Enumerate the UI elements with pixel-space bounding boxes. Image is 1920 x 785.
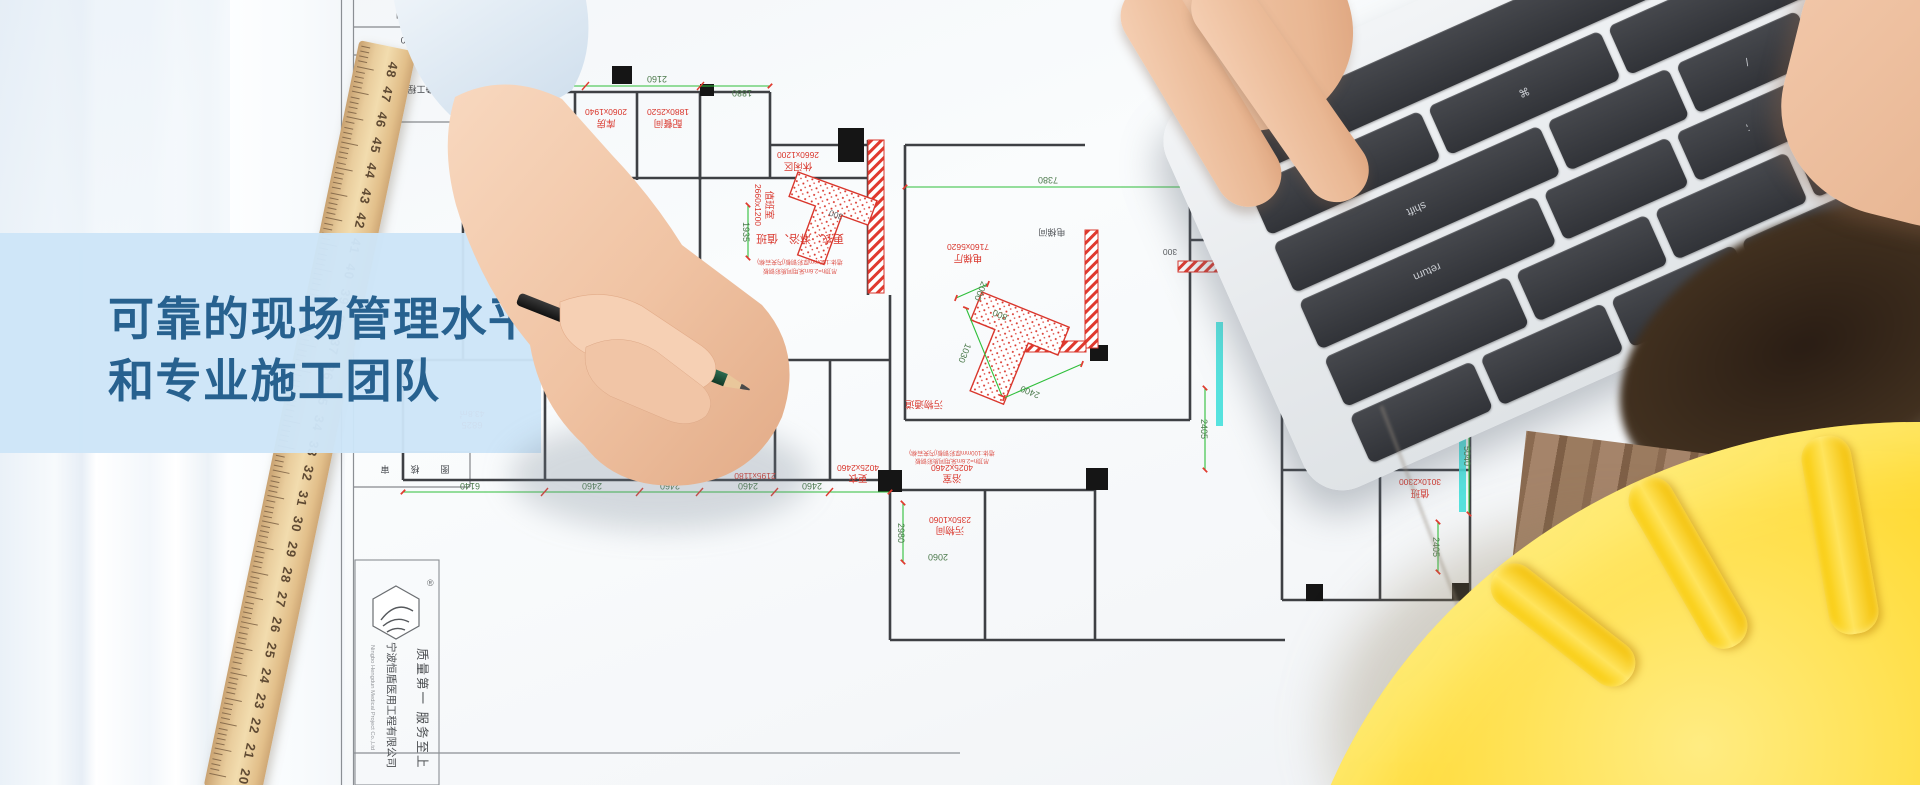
svg-text:1030: 1030 bbox=[956, 342, 973, 364]
ruler-minor-tick bbox=[323, 227, 332, 230]
ruler-major-tick bbox=[325, 217, 342, 221]
ruler-number: 28 bbox=[276, 565, 295, 590]
ruler-minor-tick bbox=[266, 500, 275, 503]
ruler-major-tick bbox=[341, 142, 358, 146]
hero-banner: 设 计 图 1:100 医院洁净工程平面布置图 审 核 图 ® 质量第一 服务至… bbox=[0, 0, 1920, 785]
ruler-minor-tick bbox=[226, 692, 235, 695]
svg-text:2060: 2060 bbox=[928, 552, 948, 562]
ruler-minor-tick bbox=[274, 465, 283, 468]
ruler-minor-tick bbox=[332, 187, 341, 190]
ruler-number: 25 bbox=[261, 641, 280, 666]
ruler-major-tick bbox=[352, 91, 369, 95]
ruler-minor-tick bbox=[263, 515, 272, 518]
ruler-minor-tick bbox=[327, 207, 336, 210]
ruler-minor-tick bbox=[254, 561, 263, 564]
ruler-minor-tick bbox=[270, 480, 279, 483]
ruler-minor-tick bbox=[234, 657, 243, 660]
ruler-minor-tick bbox=[354, 81, 363, 84]
svg-text:2350x1060: 2350x1060 bbox=[929, 515, 971, 525]
ruler-number: 26 bbox=[266, 616, 285, 641]
svg-text:电梯间: 电梯间 bbox=[1038, 227, 1065, 238]
ruler-number: 22 bbox=[245, 717, 264, 742]
ruler-minor-tick bbox=[339, 152, 348, 155]
ruler-minor-tick bbox=[324, 222, 333, 225]
ruler-number: 31 bbox=[292, 489, 311, 514]
ruler-major-tick bbox=[246, 596, 263, 600]
svg-text:污物通道: 污物通道 bbox=[905, 398, 944, 410]
ruler-minor-tick bbox=[221, 717, 230, 720]
ruler-minor-tick bbox=[342, 136, 351, 139]
ruler-minor-tick bbox=[210, 768, 219, 771]
ruler-major-tick bbox=[273, 470, 290, 474]
ruler-minor-tick bbox=[333, 182, 342, 185]
ruler-number: 44 bbox=[361, 161, 380, 186]
svg-text:3010x2300: 3010x2300 bbox=[1399, 477, 1441, 487]
ruler-minor-tick bbox=[243, 611, 252, 614]
ruler-minor-tick bbox=[229, 677, 238, 680]
ruler-number: 21 bbox=[240, 742, 259, 767]
ruler-major-tick bbox=[346, 116, 363, 120]
ruler-minor-tick bbox=[250, 576, 259, 579]
ruler-minor-tick bbox=[235, 652, 244, 655]
ruler-major-tick bbox=[357, 66, 374, 70]
ruler-minor-tick bbox=[330, 197, 339, 200]
svg-text:电梯厅: 电梯厅 bbox=[953, 252, 982, 264]
ruler-minor-tick bbox=[216, 743, 225, 746]
ruler-minor-tick bbox=[227, 687, 236, 690]
ruler-minor-tick bbox=[255, 556, 264, 559]
svg-text:浴室: 浴室 bbox=[942, 472, 961, 484]
ruler-minor-tick bbox=[272, 475, 281, 478]
svg-text:7380: 7380 bbox=[1038, 175, 1058, 185]
svg-text:2980: 2980 bbox=[896, 523, 906, 543]
stamp-logo-hexagon bbox=[373, 586, 419, 639]
ruler-major-tick bbox=[252, 571, 269, 575]
ruler-minor-tick bbox=[349, 106, 358, 109]
ruler-minor-tick bbox=[238, 637, 247, 640]
ruler-minor-tick bbox=[222, 712, 231, 715]
ruler-major-tick bbox=[267, 495, 284, 499]
svg-text:300: 300 bbox=[1163, 247, 1177, 257]
ruler-number: 30 bbox=[287, 515, 306, 540]
ruler-minor-tick bbox=[260, 530, 269, 533]
ruler-minor-tick bbox=[259, 536, 268, 539]
ruler-major-tick bbox=[225, 697, 242, 701]
ruler-minor-tick bbox=[360, 51, 369, 54]
svg-text:更衣: 更衣 bbox=[848, 472, 868, 484]
ruler-major-tick bbox=[236, 647, 253, 651]
ruler-number: 20 bbox=[234, 767, 253, 785]
ruler-minor-tick bbox=[358, 61, 367, 64]
ruler-minor-tick bbox=[335, 172, 344, 175]
ruler-major-tick bbox=[230, 672, 247, 676]
ruler-minor-tick bbox=[268, 490, 277, 493]
ruler-minor-tick bbox=[258, 541, 267, 544]
ruler-minor-tick bbox=[214, 753, 223, 756]
ruler-minor-tick bbox=[343, 131, 352, 134]
ruler-minor-tick bbox=[340, 147, 349, 150]
ruler-minor-tick bbox=[355, 76, 364, 79]
ruler-minor-tick bbox=[240, 626, 249, 629]
ruler-minor-tick bbox=[350, 101, 359, 104]
ruler-minor-tick bbox=[344, 126, 353, 129]
svg-text:4025x2460: 4025x2460 bbox=[931, 463, 973, 473]
ruler-minor-tick bbox=[212, 758, 221, 761]
ruler-minor-tick bbox=[345, 121, 354, 124]
ruler-minor-tick bbox=[265, 505, 274, 508]
ruler-minor-tick bbox=[249, 581, 258, 584]
ruler-minor-tick bbox=[245, 601, 254, 604]
company-stamp: ® 质量第一 服务至上 宁波恒盾医用工程有限公司 Ningbo Hengdun … bbox=[355, 560, 439, 785]
ruler-number: 24 bbox=[255, 666, 274, 691]
svg-text:2405: 2405 bbox=[1199, 419, 1209, 439]
ruler-major-tick bbox=[241, 621, 258, 625]
ruler-minor-tick bbox=[356, 71, 365, 74]
svg-text:墙体:100mm厚彩钢板(内夹岩棉): 墙体:100mm厚彩钢板(内夹岩棉) bbox=[909, 449, 995, 457]
ruler-minor-tick bbox=[233, 662, 242, 665]
ruler-minor-tick bbox=[337, 162, 346, 165]
ruler-major-tick bbox=[336, 167, 353, 171]
ruler-minor-tick bbox=[361, 46, 370, 49]
ruler-minor-tick bbox=[218, 733, 227, 736]
ruler-minor-tick bbox=[351, 96, 360, 99]
svg-text:污物间: 污物间 bbox=[936, 524, 965, 536]
stamp-slogan: 质量第一 服务至上 bbox=[415, 648, 430, 769]
ruler-minor-tick bbox=[275, 460, 284, 463]
stamp-company-cn: 宁波恒盾医用工程有限公司 bbox=[385, 642, 398, 768]
ruler-minor-tick bbox=[211, 763, 220, 766]
ruler-minor-tick bbox=[269, 485, 278, 488]
svg-text:4025x2460: 4025x2460 bbox=[837, 463, 879, 473]
ruler-major-tick bbox=[262, 520, 279, 524]
ruler-minor-tick bbox=[326, 212, 335, 215]
ruler-major-tick bbox=[220, 722, 237, 726]
svg-text:7160x5620: 7160x5620 bbox=[947, 242, 989, 252]
ruler-number: 23 bbox=[250, 692, 269, 717]
ruler-minor-tick bbox=[244, 606, 253, 609]
ruler-minor-tick bbox=[264, 510, 273, 513]
ruler-minor-tick bbox=[329, 202, 338, 205]
ruler-minor-tick bbox=[261, 525, 270, 528]
ruler-major-tick bbox=[215, 748, 232, 752]
ruler-number: 29 bbox=[282, 540, 301, 565]
ruler-minor-tick bbox=[334, 177, 343, 180]
ruler-minor-tick bbox=[247, 591, 256, 594]
folded-sheet-tint bbox=[0, 0, 230, 250]
ruler-minor-tick bbox=[224, 702, 233, 705]
ruler-number: 43 bbox=[356, 186, 375, 211]
ruler-number: 27 bbox=[271, 591, 290, 616]
ruler-minor-tick bbox=[239, 631, 248, 634]
ruler-minor-tick bbox=[276, 455, 285, 458]
ruler-minor-tick bbox=[338, 157, 347, 160]
ruler-minor-tick bbox=[231, 667, 240, 670]
stamp-company-en: Ningbo Hengdun Medical Project Co.,Ltd bbox=[369, 645, 375, 750]
ruler-minor-tick bbox=[348, 111, 357, 114]
ruler-minor-tick bbox=[248, 586, 257, 589]
ruler-minor-tick bbox=[228, 682, 237, 685]
ruler-minor-tick bbox=[359, 56, 368, 59]
svg-text:5040: 5040 bbox=[1462, 446, 1472, 466]
ruler-major-tick bbox=[331, 192, 348, 196]
ruler-minor-tick bbox=[217, 738, 226, 741]
gripping-fingers bbox=[540, 270, 840, 450]
ruler-minor-tick bbox=[223, 707, 232, 710]
registered-mark: ® bbox=[427, 578, 434, 588]
ruler-minor-tick bbox=[242, 616, 251, 619]
ruler-minor-tick bbox=[219, 727, 228, 730]
ruler-minor-tick bbox=[253, 566, 262, 569]
svg-text:吊顶h=2.6m采用同质彩钢板: 吊顶h=2.6m采用同质彩钢板 bbox=[915, 457, 989, 465]
ruler-minor-tick bbox=[256, 551, 265, 554]
ruler-minor-tick bbox=[353, 86, 362, 89]
ruler-minor-tick bbox=[237, 642, 246, 645]
ruler-major-tick bbox=[257, 546, 274, 550]
ruler-major-tick bbox=[209, 773, 226, 777]
ruler-number: 32 bbox=[298, 464, 317, 489]
